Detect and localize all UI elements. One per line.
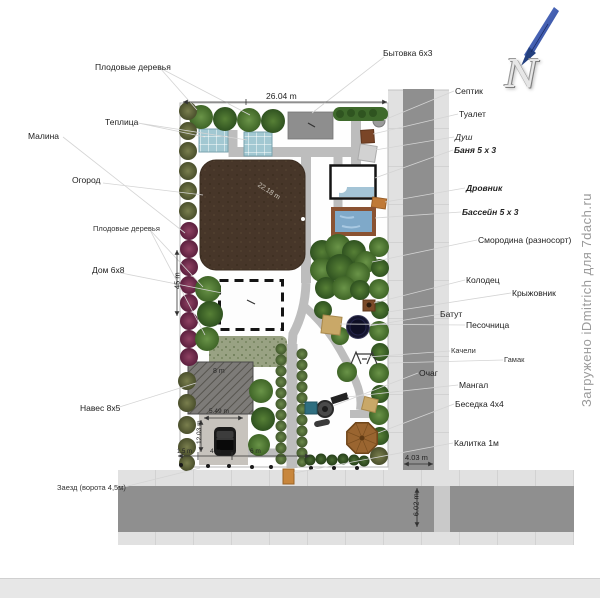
label-firepit: Очаг [419, 369, 438, 378]
label-pool: Бассейн 5 х 3 [462, 208, 519, 217]
dim-parking-width: 5.49 m [209, 409, 229, 416]
label-gazebo: Беседка 4х4 [455, 400, 504, 409]
dim-plot-width: 26.04 m [266, 92, 297, 101]
label-grill: Мангал [459, 381, 488, 390]
label-house: Дом 6х8 [92, 266, 125, 275]
label-gate: Калитка 1м [454, 439, 499, 448]
label-cabin: Бытовка 6х3 [383, 49, 432, 58]
label-septic: Септик [455, 87, 483, 96]
label-entrance: Заезд (ворота 4,5м) [57, 484, 126, 492]
label-sandbox: Песочница [466, 321, 509, 330]
label-woodshed: Дровник [466, 184, 502, 193]
label-fruit-trees-top: Плодовые деревья [95, 63, 171, 72]
label-greenhouse: Теплица [105, 118, 138, 127]
label-bathhouse: Баня 5 х 3 [454, 146, 496, 155]
label-currant: Смородина (разносорт) [478, 236, 571, 245]
label-shower: Душ [455, 133, 472, 142]
compass-north-letter: N [505, 52, 538, 96]
watermark: Загружено iDmitrich для 7dach.ru [579, 50, 599, 550]
dim-carport-width: 8 m [213, 368, 225, 375]
label-toilet: Туалет [459, 110, 486, 119]
label-gooseberry: Крыжовник [512, 289, 556, 298]
label-hammock: Гамак [504, 356, 524, 364]
dim-bottom-seg-2: 4 m [210, 449, 221, 456]
dim-parking-depth: 12.03 m [197, 412, 204, 452]
dim-front-road-width: 6.02 m [412, 485, 420, 525]
label-raspberry: Малина [28, 132, 59, 141]
label-well: Колодец [466, 276, 500, 285]
dim-plot-height: 45 m [173, 261, 181, 301]
site-plan: Плодовые деревья Теплица Малина Огород П… [0, 0, 600, 598]
label-carport: Навес 8х5 [80, 404, 120, 413]
dimension-lines [177, 99, 433, 527]
label-garden: Огород [72, 176, 100, 185]
label-swings: Качели [451, 347, 476, 355]
label-trampoline: Батут [440, 310, 462, 319]
dim-bottom-seg-3: 6 m [250, 449, 261, 456]
dim-side-road-width: 4.03 m [405, 454, 428, 462]
dim-bottom-seg-1: 1.5 m [177, 449, 192, 455]
label-fruit-trees-left: Плодовые деревья [93, 225, 160, 233]
